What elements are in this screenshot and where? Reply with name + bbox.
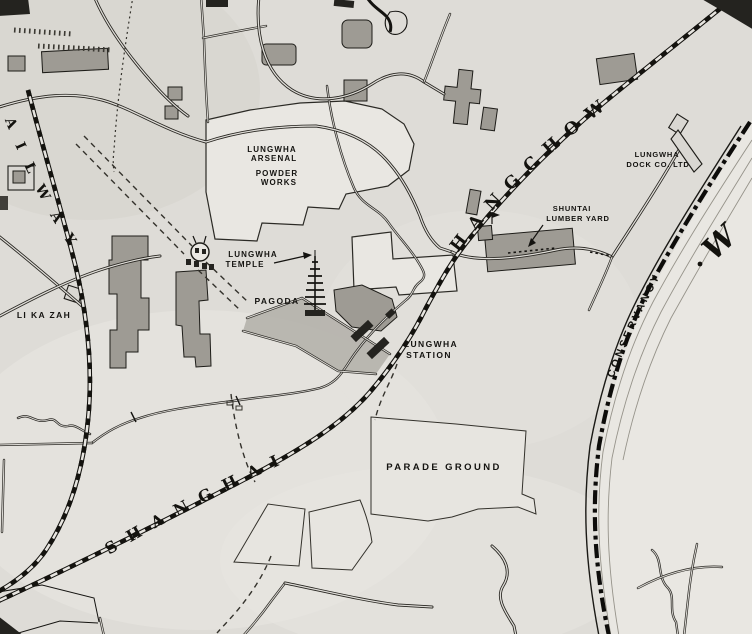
label-temple-line2: TEMPLE (225, 260, 264, 269)
label-lumber-yard-line2: LUMBER YARD (546, 214, 609, 223)
label-dock-line1: LUNGWHA (635, 150, 680, 159)
label-powder-works-line2: WORKS (261, 178, 297, 187)
label-lumber-yard-line1: SHUNTAI (553, 204, 591, 213)
label-station-line1: LUNGWHA (404, 339, 458, 349)
lungwha-district-map: LUNGWHA ARSENAL POWDER WORKS LUNGWHA TEM… (0, 0, 752, 634)
label-station-line2: STATION (406, 350, 452, 360)
label-arsenal-line2: ARSENAL (251, 154, 297, 163)
label-pagoda: PAGODA (254, 296, 299, 306)
label-powder-works-line1: POWDER (256, 169, 299, 178)
label-parade-ground: PARADE GROUND (386, 462, 501, 473)
label-li-ka-zah: LI KA ZAH (17, 310, 71, 320)
label-dock-line2: DOCK CO. LTD (626, 160, 689, 169)
river-label-dot (698, 262, 703, 267)
map-scan: LUNGWHA ARSENAL POWDER WORKS LUNGWHA TEM… (0, 0, 752, 634)
label-arsenal-line1: LUNGWHA (247, 145, 296, 154)
label-temple-line1: LUNGWHA (228, 250, 277, 259)
